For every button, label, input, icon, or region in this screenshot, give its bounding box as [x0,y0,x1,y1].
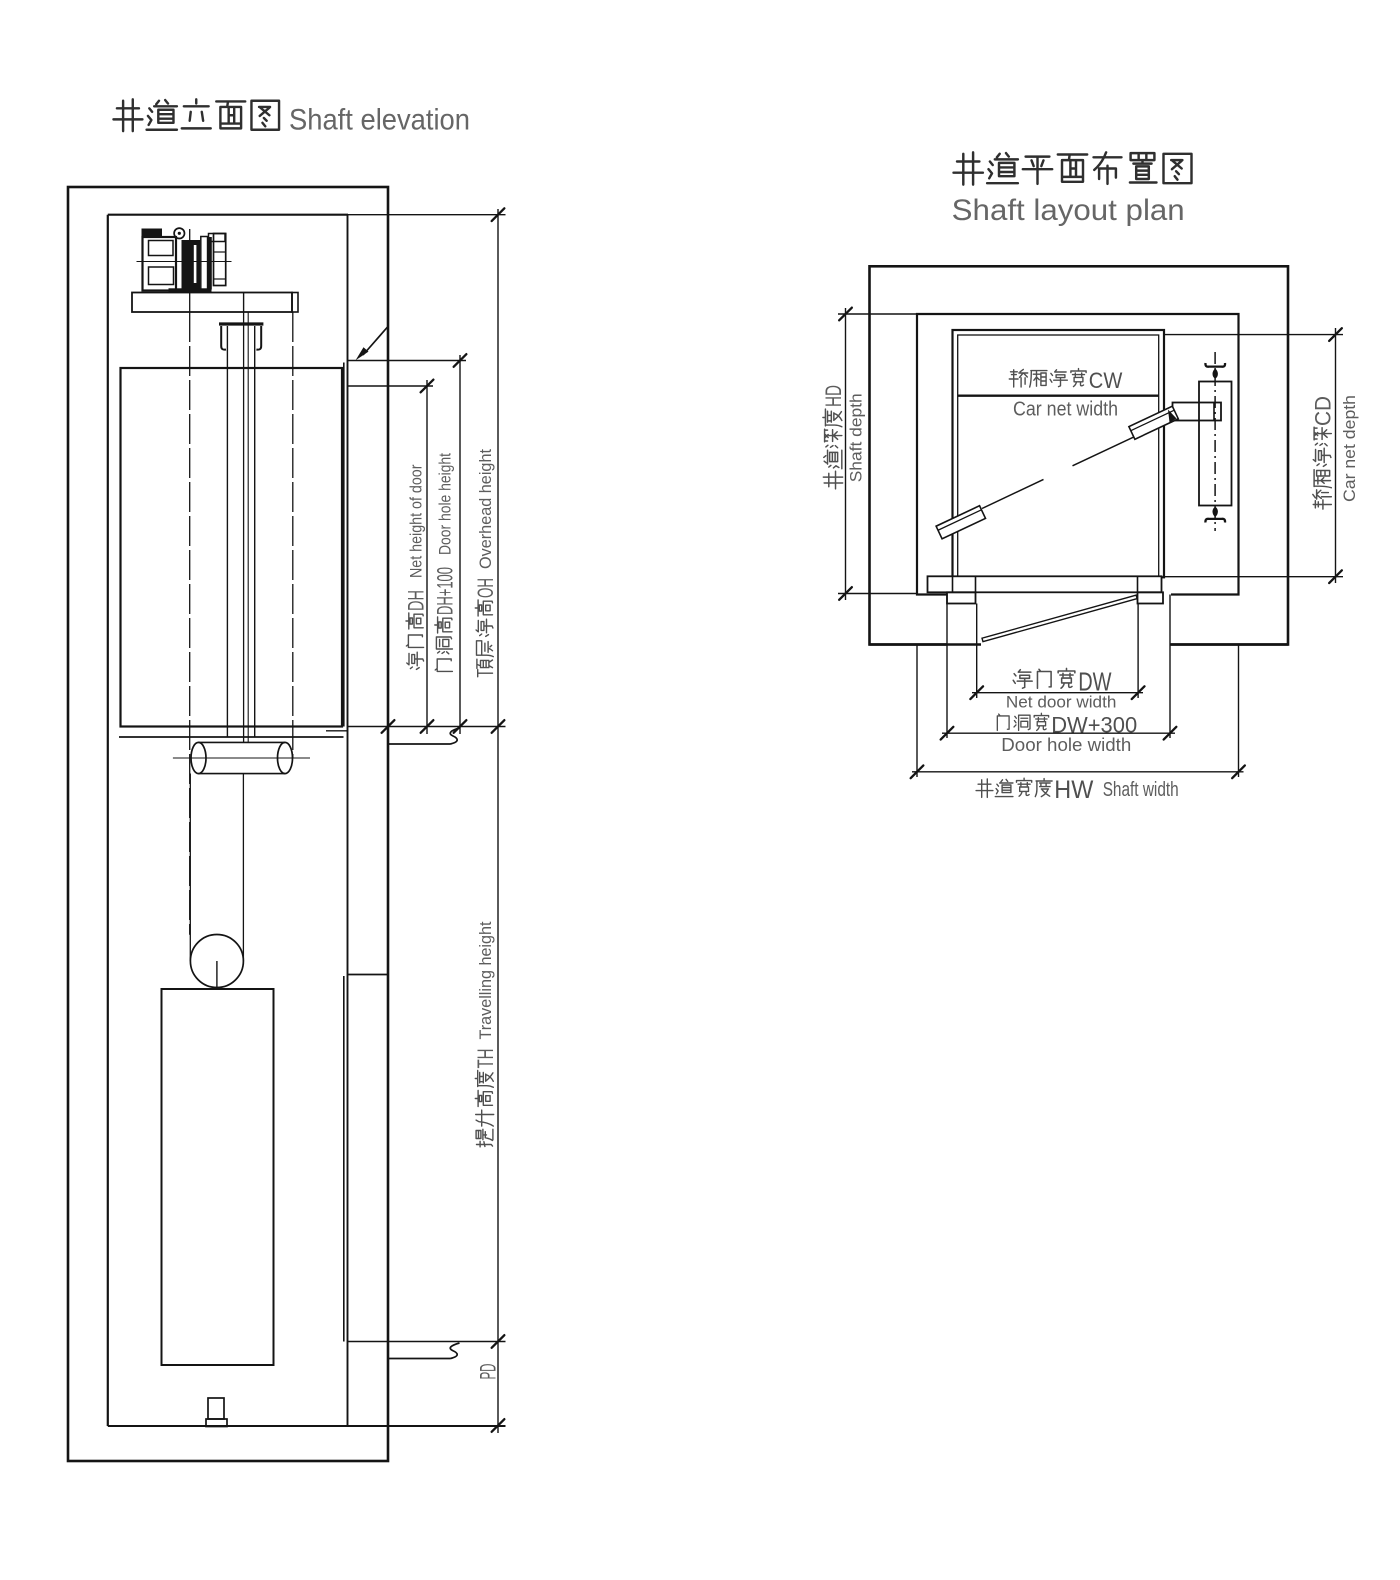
svg-text:Door hole height: Door hole height [436,453,455,555]
svg-text:Net height of door: Net height of door [407,464,426,578]
svg-text:DH: DH [404,590,429,611]
svg-text:Car net depth: Car net depth [1340,395,1359,502]
svg-text:HD: HD [821,385,846,407]
svg-text:OH: OH [473,578,498,598]
svg-text:CW: CW [1089,368,1123,393]
svg-text:DH+100: DH+100 [432,567,457,615]
svg-text:CD: CD [1310,396,1335,426]
svg-text:Overhead height: Overhead height [476,449,495,569]
svg-text:PD: PD [476,1364,501,1380]
svg-text:Travelling height: Travelling height [476,921,495,1039]
svg-text:Net door width: Net door width [1006,693,1117,712]
svg-text:Door hole width: Door hole width [1001,735,1131,755]
svg-text:Shaft layout plan: Shaft layout plan [952,194,1185,227]
svg-text:Car net width: Car net width [1013,399,1118,421]
svg-text:TH: TH [473,1049,498,1069]
svg-text:DW+300: DW+300 [1051,712,1137,737]
svg-text:Shaft depth: Shaft depth [847,393,866,482]
svg-text:HW: HW [1054,776,1093,804]
svg-text:Shaft elevation: Shaft elevation [289,103,470,136]
svg-text:Shaft width: Shaft width [1103,779,1179,801]
